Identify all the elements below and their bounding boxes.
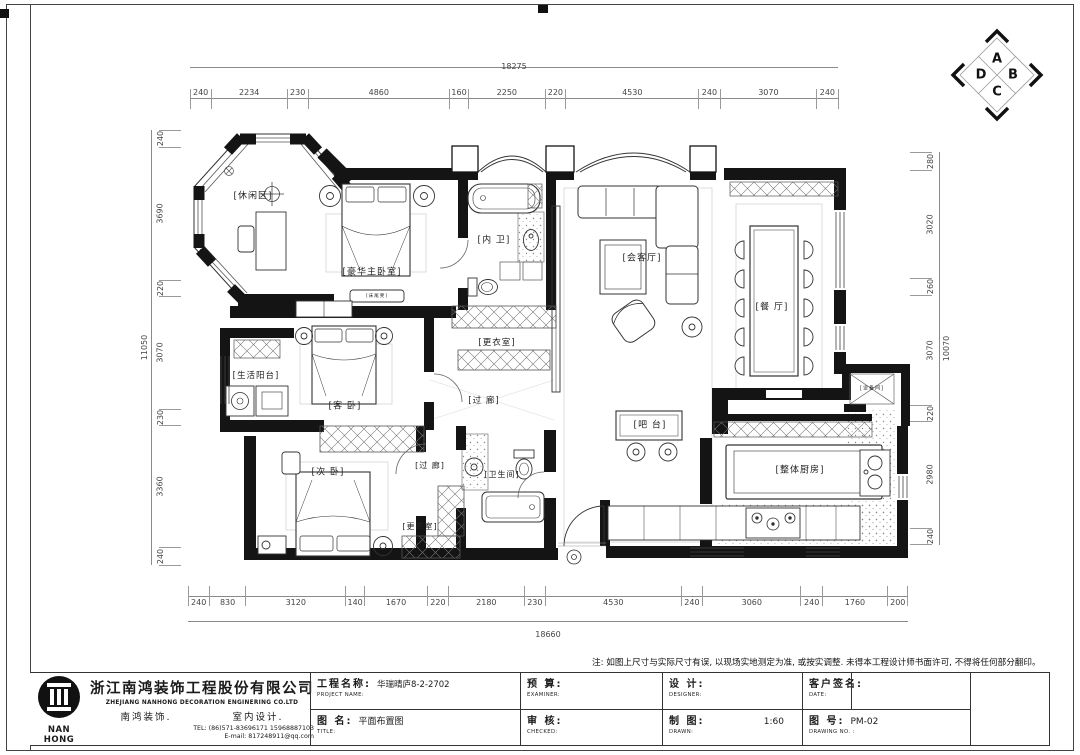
- second-bed: [296, 472, 370, 556]
- orientation-letter-d: D: [976, 68, 987, 83]
- signature-label: 客户签名:: [809, 675, 863, 690]
- dimension-segment: 240: [922, 528, 939, 545]
- dimension-segment: 4530: [566, 77, 699, 99]
- kitchen-sink: [860, 450, 890, 496]
- dimension-strip-right: 28030202603070220298024010070: [922, 152, 953, 545]
- drawing-no-value: PM-02: [850, 717, 878, 727]
- dimension-segment: 230: [287, 77, 308, 99]
- dimension-segment: 240: [699, 77, 720, 99]
- dimension-segment: 3070: [720, 77, 817, 99]
- design-draft-column: 设 计: DESIGNER: 制 图: 1:60 DRAWN:: [662, 673, 802, 745]
- kitchen-cabinets: [714, 422, 872, 437]
- project-column: 工程名称: 华瑞晴庐8-2-2702 PROJECT NAME: 图 名: 平面…: [310, 673, 520, 745]
- room-label: [内 卫]: [478, 237, 511, 246]
- project-value: 华瑞晴庐8-2-2702: [377, 678, 450, 690]
- budget-check-column: 预 算: EXAMINER: 审 核: CHECKED:: [520, 673, 662, 745]
- design-cell: 设 计: DESIGNER:: [663, 673, 802, 709]
- dimension-total: 10070: [939, 152, 953, 545]
- budget-sub: EXAMINER:: [527, 692, 658, 698]
- dimension-segment: 220: [922, 405, 939, 421]
- check-cell: 审 核: CHECKED:: [521, 709, 662, 746]
- company-tel: TEL: (86)571-83696171 15968887103: [90, 725, 314, 734]
- kitchen-counter: [608, 506, 860, 540]
- design-label: 设 计:: [669, 675, 704, 690]
- project-sub: PROJECT NAME:: [317, 692, 516, 698]
- dimension-total: 18275: [190, 54, 838, 68]
- dimension-segment: 3120: [246, 596, 346, 618]
- project-name-cell: 工程名称: 华瑞晴庐8-2-2702 PROJECT NAME:: [311, 673, 520, 709]
- dimension-total: 18660: [188, 621, 908, 635]
- dimension-segment: 140: [346, 596, 365, 618]
- design-sub: DESIGNER:: [669, 692, 798, 698]
- master-bed: [342, 184, 410, 276]
- room-label: [床尾凳]: [366, 295, 388, 300]
- room-label: [会客厅]: [622, 255, 661, 264]
- dimension-segment: 3070: [922, 296, 939, 406]
- drawing-no-sub: DRAWING NO. :: [809, 729, 966, 735]
- logo-text: NAN HONG: [36, 725, 82, 745]
- dimension-segment: 240: [188, 596, 209, 618]
- drawing-no-cell: 图 号: PM-02 DRAWING NO. :: [803, 709, 970, 746]
- dimension-segment: 240: [681, 596, 702, 618]
- arched-bay-windows: [478, 153, 690, 172]
- desk: [256, 212, 286, 270]
- drawing-no-label: 图 号:: [809, 712, 844, 727]
- dining-door-gap: [766, 390, 802, 398]
- budget-label: 预 算:: [527, 675, 562, 690]
- entry-door: [558, 506, 606, 546]
- chair: [238, 226, 254, 252]
- orientation-letter-c: C: [992, 85, 1002, 100]
- company-logo: NAN HONG: [36, 674, 82, 745]
- bar-stools: [627, 443, 677, 461]
- dimension-strip-bottom: 2408303120140167022021802304530240306024…: [188, 596, 908, 635]
- room-label: [更衣室]: [402, 523, 437, 531]
- company-email: E-mail: 817248911@qq.com: [90, 733, 314, 742]
- draft-sub: DRAWN:: [669, 729, 798, 735]
- toilet: [468, 278, 498, 296]
- drawing-sub: TITLE:: [317, 729, 516, 735]
- room-label: [客 卧]: [329, 403, 362, 412]
- dimension-segment: 220: [152, 280, 169, 296]
- dimension-segment: 1760: [822, 596, 887, 618]
- room-label: [整体厨房]: [775, 467, 824, 476]
- dimension-segment: 2980: [922, 421, 939, 528]
- orientation-diamond: [950, 28, 1046, 124]
- signature-sub: DATE:: [809, 692, 966, 698]
- room-label: [休闲区]: [233, 193, 272, 202]
- vanity-cabinet: [528, 184, 542, 208]
- draft-cell: 制 图: 1:60 DRAWN:: [663, 709, 802, 746]
- dimension-strip-top: 1827524022342304860160225022045302403070…: [190, 54, 838, 99]
- dimension-segment: 200: [888, 596, 908, 618]
- empty-column: [970, 673, 1049, 745]
- dimension-segment: 220: [545, 77, 566, 99]
- dimension-segment: 240: [190, 77, 211, 99]
- room-label: [次 卧]: [312, 469, 345, 478]
- orientation-letter-b: B: [1008, 68, 1018, 83]
- check-sub: CHECKED:: [527, 729, 658, 735]
- dept-name: 室内设计.: [232, 709, 283, 723]
- dimension-segment: 2234: [211, 77, 287, 99]
- dimension-segment: 2250: [469, 77, 545, 99]
- dimension-segment: 240: [152, 548, 169, 565]
- side-table: [682, 317, 702, 337]
- dimension-segment: 3070: [152, 297, 169, 409]
- window-seat: [296, 301, 352, 317]
- room-label: [吧 台]: [634, 422, 667, 431]
- orientation-letter-a: A: [992, 52, 1002, 67]
- dimension-segment: 3060: [703, 596, 801, 618]
- dimension-segment: 3690: [152, 147, 169, 280]
- dimension-segment: 3020: [922, 170, 939, 278]
- dimension-segment: 830: [209, 596, 245, 618]
- signature-cell: 客户签名: DATE:: [803, 673, 970, 709]
- dimension-segment: 2180: [448, 596, 524, 618]
- dining-cabinet: [730, 182, 838, 196]
- dimension-segment: 240: [152, 130, 169, 147]
- room-label: [卫生间]: [484, 471, 519, 479]
- octagon-bay: [194, 134, 350, 300]
- dimension-segment: 240: [817, 77, 838, 99]
- title-block: NAN HONG 浙江南鸿装饰工程股份有限公司 ZHEJIANG NANHONG…: [30, 672, 1050, 746]
- armchair: [609, 297, 658, 345]
- dining-table: [750, 226, 798, 376]
- room-label: [设备间]: [860, 387, 884, 392]
- company-name-cn: 浙江南鸿装饰工程股份有限公司: [90, 677, 314, 698]
- room-label: [更衣室]: [478, 339, 515, 348]
- small-desk: [258, 536, 286, 554]
- check-label: 审 核:: [527, 712, 562, 727]
- scale-value: 1:60: [764, 717, 784, 727]
- orientation-marker: A B C D: [950, 28, 1046, 124]
- drawing-name-cell: 图 名: 平面布置图 TITLE:: [311, 709, 520, 746]
- brand-name: 南鸿装饰.: [120, 709, 171, 723]
- dimension-segment: 1670: [365, 596, 428, 618]
- signature-divider: [851, 673, 852, 709]
- drawing-label: 图 名:: [317, 712, 352, 727]
- dimension-segment: 260: [922, 278, 939, 296]
- dimension-strip-left: 11050240369022030702303360240: [138, 130, 169, 565]
- dimension-segment: 220: [427, 596, 448, 618]
- company-name-en: ZHEJIANG NANHONG DECORATION ENGINERING C…: [90, 700, 314, 706]
- dimension-segment: 3360: [152, 426, 169, 548]
- arch-piers: [452, 146, 716, 172]
- dimension-total: 11050: [138, 130, 152, 565]
- budget-cell: 预 算: EXAMINER:: [521, 673, 662, 709]
- dimension-segment: 4860: [308, 77, 449, 99]
- signature-number-column: 客户签名: DATE: 图 号: PM-02 DRAWING NO. :: [802, 673, 970, 745]
- project-label: 工程名称:: [317, 675, 371, 690]
- dimension-segment: 280: [922, 152, 939, 170]
- bath-shelves: [500, 262, 542, 280]
- bathroom-tub: [482, 492, 544, 522]
- dimension-segment: 240: [801, 596, 822, 618]
- guest-wardrobe: [320, 426, 424, 452]
- room-label: [餐 厅]: [756, 304, 789, 313]
- room-label: [豪华主卧室]: [342, 269, 401, 278]
- drawing-sheet: [休闲区][豪华主卧室][内 卫][更衣室][会客厅][餐 厅][生活阳台][客…: [0, 0, 1080, 755]
- company-block: NAN HONG 浙江南鸿装饰工程股份有限公司 ZHEJIANG NANHONG…: [30, 673, 310, 745]
- draft-label: 制 图:: [669, 712, 704, 727]
- room-label: [过 廊]: [415, 462, 445, 470]
- chair: [282, 452, 300, 474]
- room-label: [过 廊]: [468, 397, 499, 406]
- door-swing: [434, 374, 462, 402]
- door-swing: [440, 240, 468, 268]
- dimension-segment: 160: [449, 77, 468, 99]
- dimension-segment: 230: [524, 596, 545, 618]
- stove: [746, 508, 800, 538]
- entry-decor: [567, 550, 581, 564]
- dimension-segment: 4530: [545, 596, 681, 618]
- drawing-value: 平面布置图: [358, 714, 403, 727]
- drawing-note: 注: 如图上尺寸与实际尺寸有误, 以现场实地测定为准, 或按实调整. 未得本工程…: [592, 656, 1050, 668]
- room-label: [生活阳台]: [233, 372, 280, 381]
- dimension-segment: 230: [152, 409, 169, 426]
- guest-bed: [312, 326, 376, 404]
- coffee-table: [600, 240, 646, 294]
